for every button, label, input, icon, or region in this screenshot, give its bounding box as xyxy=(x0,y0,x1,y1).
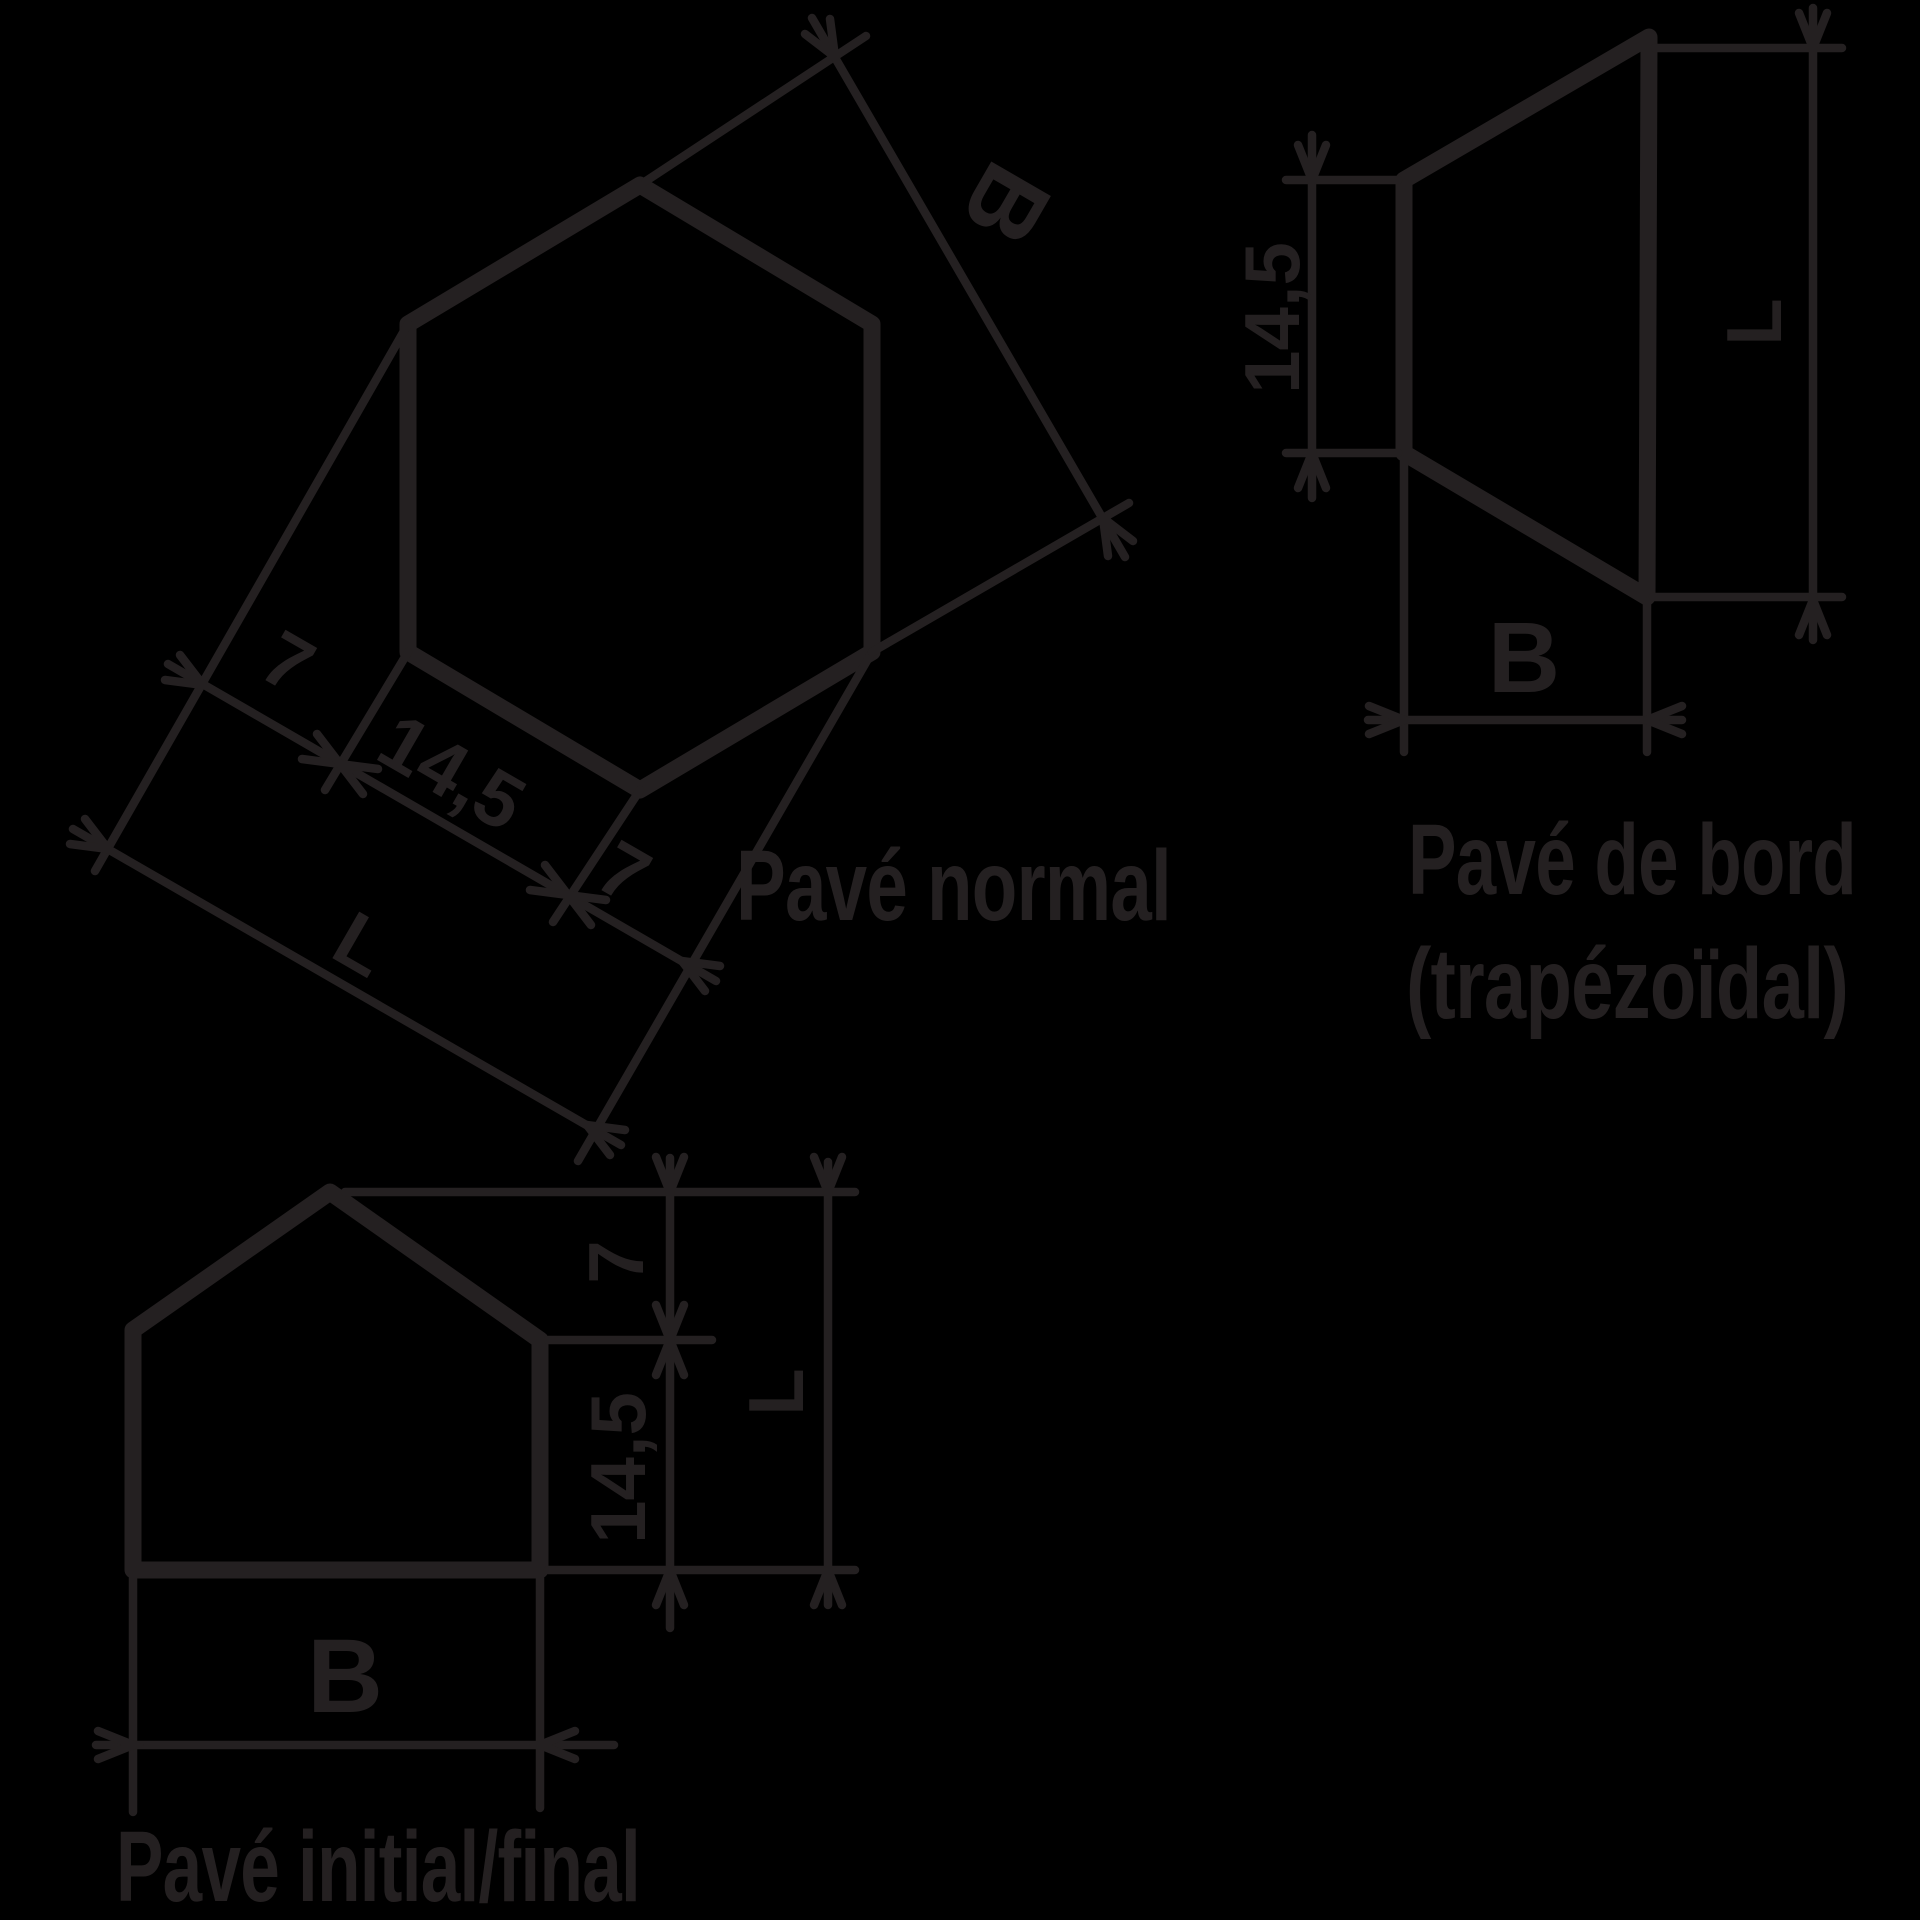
dimension-line-width xyxy=(812,18,1125,557)
caption-pave-de-bord-line1: Pavé de bord xyxy=(1408,804,1856,916)
extension-line xyxy=(872,503,1129,652)
dim-label-14-5: 14,5 xyxy=(574,1392,662,1544)
drawing-canvas: 7 14,5 7 L B Pavé normal 14,5 L B xyxy=(0,0,1920,1920)
caption-pave-normal: Pavé normal xyxy=(736,830,1171,942)
trapezoid-outline xyxy=(1404,37,1649,597)
dim-label-B: B xyxy=(307,1618,383,1735)
caption-pave-initial-final: Pavé initial/final xyxy=(116,1811,640,1920)
paving-stones-dimension-drawing: 7 14,5 7 L B Pavé normal 14,5 L B xyxy=(0,0,1920,1920)
caption-pave-de-bord-line2: (trapézoïdal) xyxy=(1406,928,1848,1040)
dim-label-7-first: 7 xyxy=(247,613,329,711)
dim-label-L: L xyxy=(1710,298,1798,346)
figure-pave-de-bord: 14,5 L B Pavé de bord (trapézoïdal) xyxy=(1228,8,1856,1040)
dim-label-7: 7 xyxy=(572,1240,660,1283)
dim-label-B: B xyxy=(939,145,1072,264)
dim-label-B: B xyxy=(1488,602,1560,714)
hexagon-outline xyxy=(408,185,872,790)
pentagon-outline xyxy=(133,1192,540,1570)
figure-pave-normal: 7 14,5 7 L B Pavé normal xyxy=(70,18,1171,1161)
dim-label-7-second: 7 xyxy=(583,823,665,921)
dim-label-14-5: 14,5 xyxy=(1228,242,1316,394)
figure-pave-initial-final: 7 14,5 L B Pavé initial/final xyxy=(96,1157,855,1920)
dim-label-L: L xyxy=(732,1368,820,1416)
